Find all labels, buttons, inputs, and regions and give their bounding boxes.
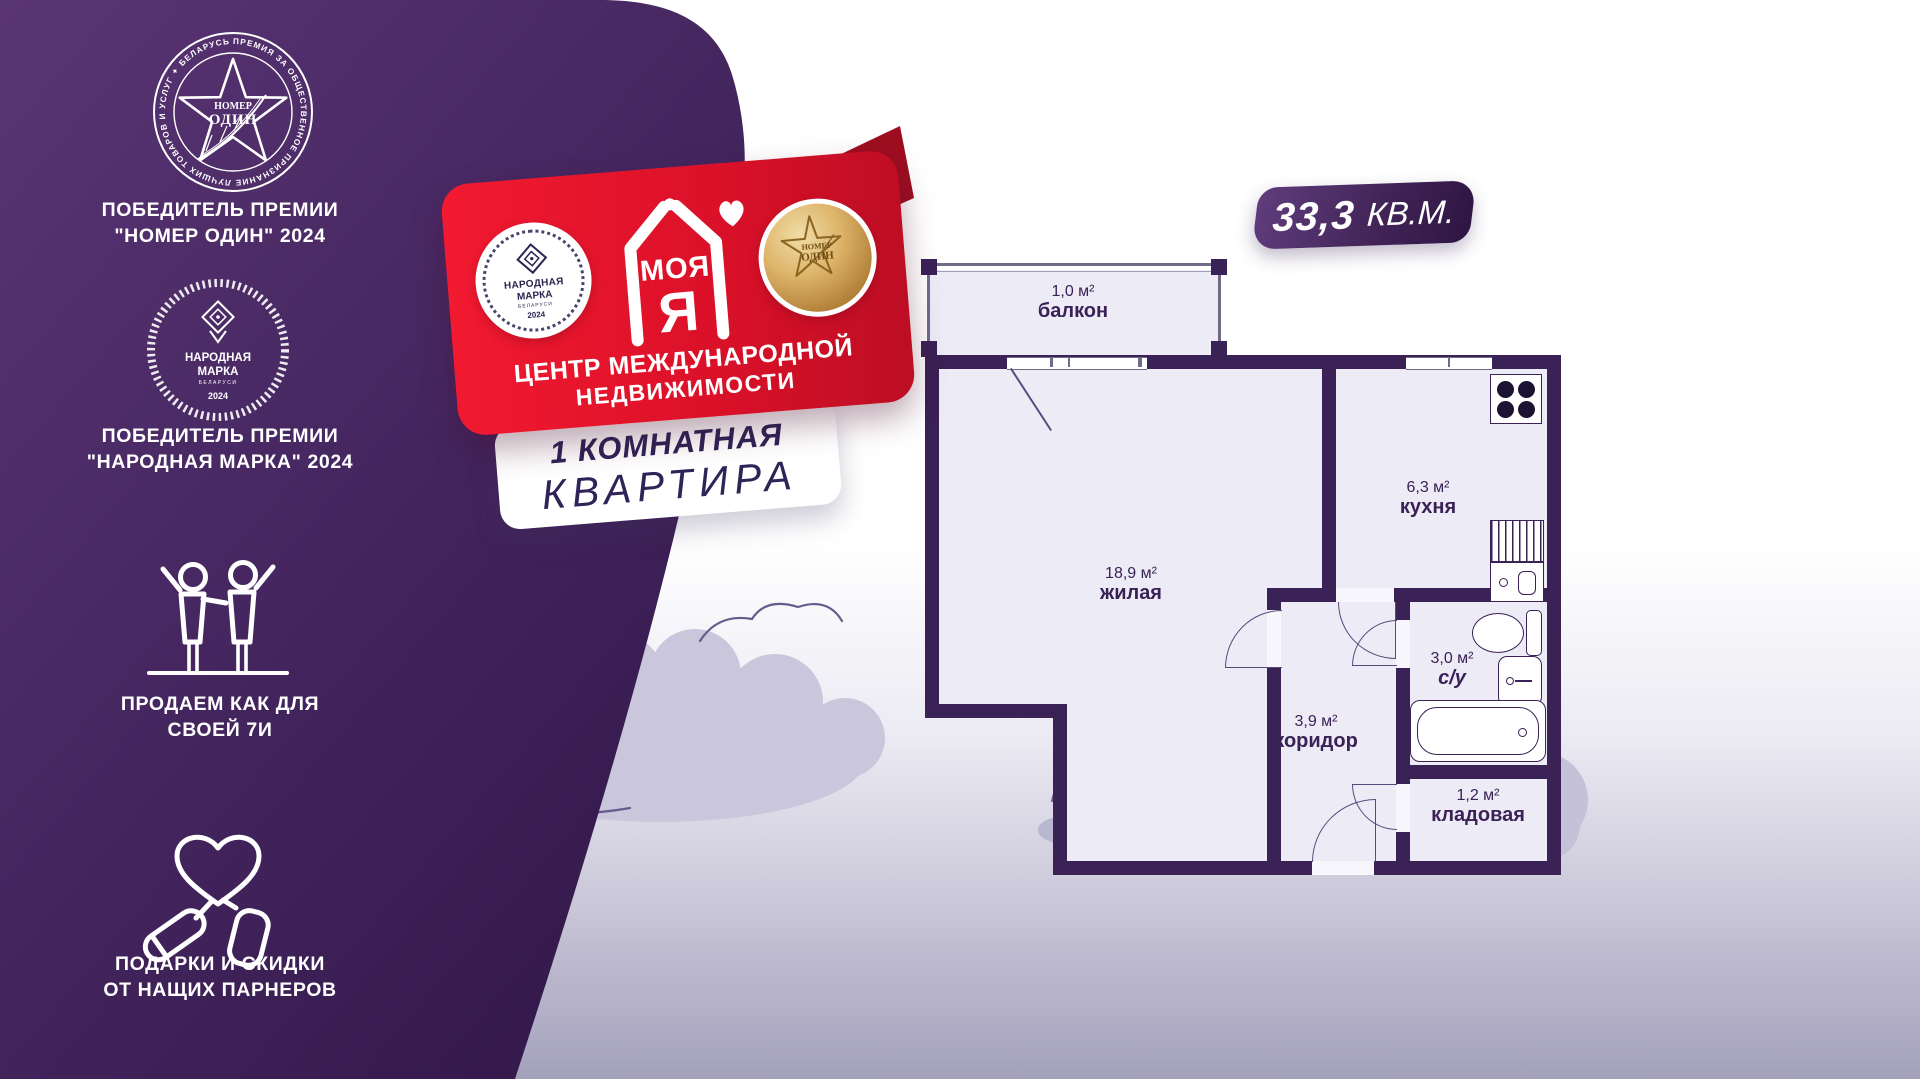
heart-icon — [719, 200, 745, 227]
poster-canvas: ПРЕМИЯ ЗА ОБЩЕСТВЕННОЕ ПРИЗНАНИЕ ЛУЧШИХ … — [0, 0, 1920, 1079]
total-area-unit: КВ.М. — [1366, 193, 1456, 234]
ribbon-fold-shape — [0, 0, 1920, 1079]
ribbon-gold-medal-icon: НОМЕР ОДИН — [754, 194, 881, 321]
total-area-plate: 33,3 КВ.М. — [1252, 180, 1477, 250]
logo-letter: Я — [600, 273, 757, 350]
total-area-value: 33,3 — [1272, 193, 1357, 241]
moya-logo: МОЯ Я — [593, 185, 757, 353]
ribbon-narodnaya-marka-badge-icon: НАРОДНАЯ МАРКА БЕЛАРУСИ 2024 — [471, 218, 596, 343]
agency-ribbon: НАРОДНАЯ МАРКА БЕЛАРУСИ 2024 МОЯ Я — [440, 149, 917, 437]
